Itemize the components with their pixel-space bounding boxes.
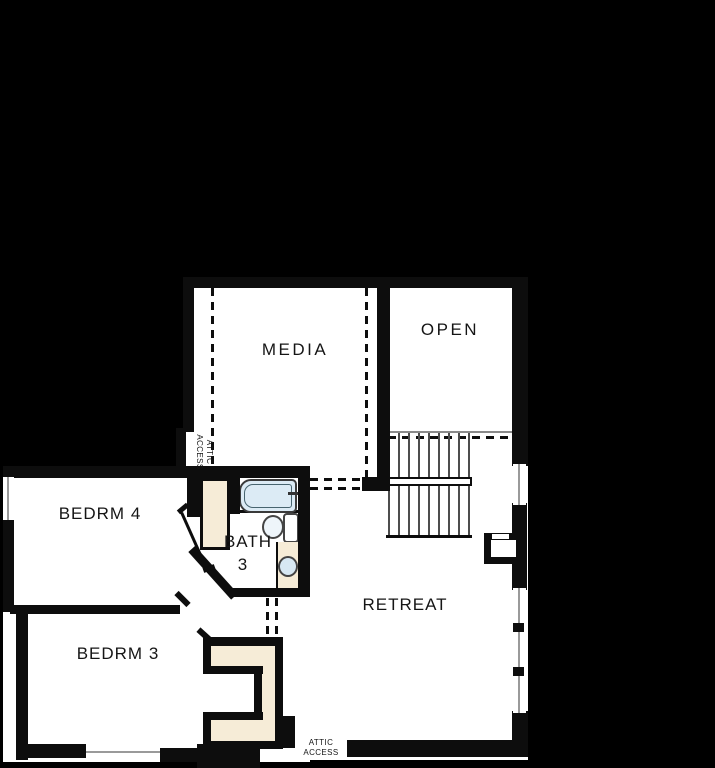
attic-access-left-line2: ACCESS bbox=[194, 424, 204, 480]
toilet-icon bbox=[278, 556, 298, 577]
landing-opening-dash-bottom bbox=[310, 487, 367, 490]
window-retreat-right bbox=[513, 588, 526, 713]
wall-right-lower bbox=[512, 711, 528, 757]
wall-media-open-divider bbox=[377, 277, 390, 484]
wall-left-exterior bbox=[3, 518, 14, 612]
wall-bedrm4-bedrm3-divider bbox=[10, 605, 180, 614]
bathtub-inner-line bbox=[244, 484, 292, 508]
wall-mass-below-closet bbox=[197, 744, 260, 768]
wall-retreat-bottom bbox=[347, 740, 528, 757]
stair-handrail bbox=[386, 477, 472, 486]
landing-opening-dash-top bbox=[310, 478, 367, 481]
closet-shelf-wall-right bbox=[254, 666, 262, 720]
hall-door-dash-left bbox=[266, 598, 269, 638]
closet-open-notch bbox=[203, 674, 254, 712]
wall-right-upper bbox=[512, 277, 528, 466]
media-dashed-wall-right bbox=[365, 288, 368, 480]
room-label-media: MEDIA bbox=[215, 340, 375, 360]
attic-access-label-left: ATTIC ACCESS bbox=[186, 424, 214, 480]
floor-plan: MEDIA OPEN BEDRM 4 BATH 3 BEDRM 3 RETREA… bbox=[0, 0, 715, 768]
room-label-bath3-line2: 3 bbox=[213, 555, 273, 575]
window-mullion-icon bbox=[513, 667, 524, 676]
window-mullion-icon bbox=[513, 623, 524, 632]
room-label-bedrm3: BEDRM 3 bbox=[48, 644, 188, 664]
wall-bath-right bbox=[298, 466, 310, 597]
wall-bedrm3-left bbox=[16, 610, 28, 760]
wall-bedrm3-bottom-left bbox=[16, 744, 86, 758]
stair-bottom-line bbox=[386, 535, 472, 538]
wall-attic-notch-left bbox=[176, 428, 186, 470]
room-label-bedrm4: BEDRM 4 bbox=[30, 504, 170, 524]
wall-bath-bottom bbox=[233, 588, 308, 597]
bathtub bbox=[239, 479, 297, 513]
window-bedrm4-left bbox=[3, 477, 14, 520]
wall-bedrm4-top bbox=[3, 466, 310, 478]
attic-access-bottom-line1: ATTIC bbox=[294, 738, 348, 748]
wall-divider-foot bbox=[362, 477, 390, 491]
room-label-open: OPEN bbox=[400, 320, 500, 340]
stair-niche-opening bbox=[492, 534, 509, 539]
sink-counter bbox=[283, 513, 299, 543]
window-bedrm3-bottom bbox=[86, 746, 160, 758]
hall-door-dash-right bbox=[275, 598, 278, 638]
room-label-retreat: RETREAT bbox=[350, 595, 460, 615]
wall-tub-left bbox=[228, 478, 240, 514]
wall-top bbox=[183, 277, 528, 288]
attic-access-label-bottom: ATTIC ACCESS bbox=[294, 738, 348, 762]
attic-access-bottom-line2: ACCESS bbox=[294, 748, 348, 758]
attic-access-left-line1: ATTIC bbox=[204, 424, 214, 480]
wall-media-left bbox=[183, 277, 194, 432]
room-label-bath3-line1: BATH bbox=[213, 532, 283, 552]
window-landing-right bbox=[513, 464, 526, 505]
tub-faucet-icon bbox=[288, 492, 298, 495]
staircase bbox=[388, 430, 512, 540]
